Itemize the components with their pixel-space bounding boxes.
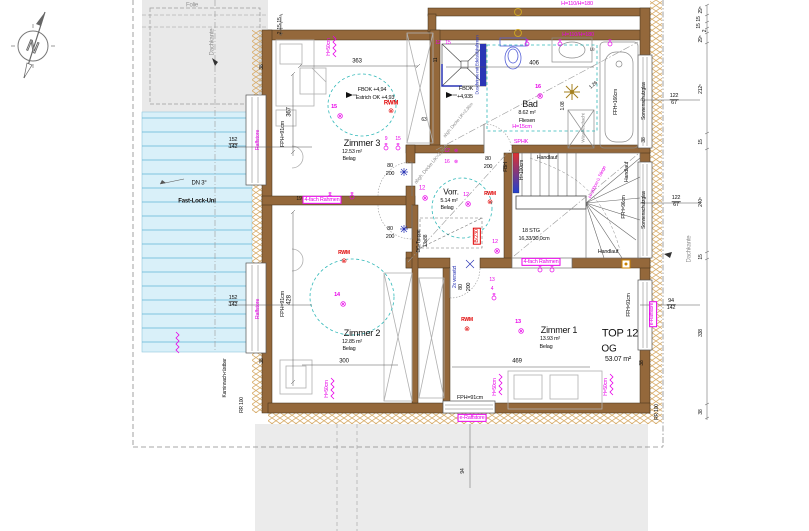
chain-38: 38 bbox=[699, 409, 705, 414]
z3-smoke-label: RWM bbox=[384, 101, 398, 108]
tag-15: 15 bbox=[395, 137, 400, 143]
bad-door-height: 200 bbox=[484, 164, 493, 170]
vorr-smoke-icon: ⊗ bbox=[487, 199, 493, 207]
laundry-chute-label: Wäscheschacht bbox=[580, 113, 585, 142]
dim-top-15b: 15 bbox=[278, 24, 284, 29]
z2-door-width: 80 bbox=[387, 226, 393, 232]
roof-edge-label-right: Dachkante bbox=[687, 236, 694, 263]
stair-count-label: 18 STG bbox=[522, 228, 540, 234]
vorr-smoke-label: RWM bbox=[484, 192, 496, 198]
z1-room-area: 13.93 m² bbox=[540, 336, 560, 342]
chain-240: 240⁵ bbox=[699, 197, 705, 207]
z1-room-finish: Belag bbox=[539, 344, 552, 350]
vorr-light-icon-3: ⊗ bbox=[494, 246, 501, 255]
insulation-hatch bbox=[252, 0, 662, 424]
bad-light-icon: ⊗ bbox=[537, 91, 544, 100]
vorr-room-finish: Belag bbox=[440, 205, 453, 211]
chimney-note: Kaminnach-rüstbar bbox=[223, 359, 229, 398]
unit-number: TOP 12 bbox=[602, 328, 638, 341]
vorr-tag-16: 16 bbox=[444, 160, 449, 166]
e-raffstore-right: e-Raffstore bbox=[649, 301, 657, 327]
z1-door-width: 80 bbox=[458, 284, 464, 290]
glazing-note-2: Sonnenschutzglas bbox=[642, 191, 648, 229]
attic-stair-label-2: 13x88 bbox=[424, 235, 430, 248]
vent-label: Lü bbox=[590, 46, 595, 51]
raffstore-label-2: Raffstore bbox=[255, 299, 261, 319]
radiator-height-z2: H=50cm bbox=[325, 380, 331, 398]
glazing-note-1: Sonnenschutzglas bbox=[642, 82, 648, 120]
dim-38-bl: 38 bbox=[260, 358, 266, 363]
z1-door-height: 200 bbox=[466, 283, 472, 292]
roof-foil-label: Folie bbox=[186, 3, 198, 10]
z1-smoke-label: RWM bbox=[461, 318, 473, 324]
z1-tag-4: 4 bbox=[491, 287, 494, 293]
roof-edge-arrows bbox=[212, 58, 672, 258]
roof-edge-label-left: Dachkante bbox=[210, 29, 217, 56]
chain-15a: 15 bbox=[697, 16, 703, 21]
parapet-height-bottom: FPH=91cm bbox=[457, 395, 483, 401]
dim-38-r2: 38 bbox=[640, 360, 646, 365]
vorr-light-no-1: 12 bbox=[419, 186, 425, 193]
fbh-height-label: H=100cm bbox=[520, 160, 526, 180]
shower-channel-note: Duschrinne mit Edelstahlrahmen bbox=[474, 35, 479, 94]
dim-38-tl: 38 bbox=[260, 64, 266, 69]
bad-room-name: Bad bbox=[522, 99, 537, 109]
z2-room-area: 12.85 m² bbox=[342, 339, 362, 345]
radiator-height-z1a: H=50cm bbox=[493, 378, 499, 396]
z2-smoke-label: RWM bbox=[338, 251, 350, 257]
z2-door-height: 200 bbox=[386, 234, 395, 240]
vorr-light-icon-1: ⊗ bbox=[422, 193, 429, 202]
dim-406: 406 bbox=[529, 61, 538, 68]
terrace-surface-label: Fast-Lock-Uni bbox=[178, 199, 215, 206]
tub-height-label: FFH=166cm bbox=[614, 89, 620, 115]
dim-38-r1: 38 bbox=[642, 137, 648, 142]
dim-63: 63 bbox=[421, 118, 426, 124]
chain-15d: 15 bbox=[699, 254, 705, 259]
vorr-room-name: Vorr. bbox=[443, 187, 458, 196]
radiator-height-z3: H=50cm bbox=[327, 38, 333, 56]
downpipe-label-left: RR 100 bbox=[240, 397, 246, 413]
window-dim-right-1: 12267 bbox=[670, 93, 679, 107]
frame-note-left: 4-fach Rahmen bbox=[302, 196, 341, 204]
roof-slope-label: DN 3° bbox=[191, 181, 206, 188]
stair-step-label: 16,33/30,0cm bbox=[519, 236, 550, 242]
bad-fbok-value: +4,935 bbox=[457, 94, 473, 100]
z3-door-width: 80 bbox=[387, 163, 393, 169]
fbh-label: FBH bbox=[504, 162, 510, 171]
dim-11: 11 bbox=[434, 58, 440, 63]
unit-floor: OG bbox=[601, 343, 616, 355]
bad-light-no: 16 bbox=[535, 84, 541, 90]
z2-room-finish: Belag bbox=[342, 346, 355, 352]
dim-300: 300 bbox=[339, 359, 348, 366]
handrail-label-3: Handlauf bbox=[598, 249, 618, 255]
handrail-label-2: Handlauf bbox=[624, 162, 630, 182]
dim-94-bottom: 94 bbox=[461, 468, 467, 473]
bad-sphk-note: SPHK bbox=[514, 139, 528, 145]
vorr-light-no-2: 12 bbox=[463, 192, 469, 198]
dimension-lines bbox=[228, 4, 709, 420]
bad-h15-note: H=15cm bbox=[512, 124, 531, 130]
bad-tag-15: 15 bbox=[445, 41, 450, 47]
downpipe-label-right: RR 100 bbox=[655, 404, 661, 420]
dim-top-2: 2 bbox=[278, 32, 284, 35]
unit-area: 53.07 m² bbox=[605, 356, 631, 364]
z1-room-name: Zimmer 1 bbox=[541, 325, 577, 335]
raffstore-label-1: Raffstore bbox=[255, 130, 261, 150]
e-raffstore-bottom: e-Raffstore bbox=[458, 414, 487, 422]
floor-plan-canvas: N Folie Dachkante Dachkante DN 3° Fast-L… bbox=[0, 0, 809, 531]
chain-212: 212⁵ bbox=[699, 84, 705, 94]
vorr-light-no-3: 12 bbox=[492, 239, 498, 245]
parapet-height-1: FPH=91cm bbox=[280, 121, 286, 147]
dim-108: 1.08 bbox=[561, 102, 567, 111]
z3-light-icon: ⊗ bbox=[337, 111, 344, 120]
handrail-label-1: Handlauf bbox=[537, 155, 557, 161]
z3-light-no: 15 bbox=[331, 104, 337, 110]
dim-top-15a: 15 bbox=[278, 17, 284, 22]
window-dim-left-2: 152142 bbox=[229, 295, 238, 309]
z3-room-finish: Belag bbox=[342, 156, 355, 162]
chain-29b: 29⁵ bbox=[699, 35, 705, 42]
z1-tag-13: 13 bbox=[489, 278, 494, 284]
ceiling-fan-icon bbox=[564, 84, 580, 100]
floor-heating-manifold bbox=[513, 153, 519, 193]
z3-smoke-icon: ⊗ bbox=[388, 108, 394, 116]
wc-fixture bbox=[500, 38, 526, 69]
chain-15b: 15 bbox=[697, 23, 703, 28]
vorr-tag-16-icon: ⊗ bbox=[454, 160, 458, 166]
window-height-note-2: H=110/H=180 bbox=[562, 32, 594, 38]
vorr-tag-12-icon: ⊗ bbox=[454, 149, 458, 155]
chain-29a: 29⁵ bbox=[699, 6, 705, 13]
bad-tag-12: 12 bbox=[435, 41, 440, 47]
parapet-height-2: FPH=91cm bbox=[280, 291, 286, 317]
z1-light-no: 13 bbox=[515, 319, 521, 325]
window-dim-right-3: 94142 bbox=[667, 298, 676, 312]
dim-428: 428 bbox=[287, 295, 294, 304]
attic-stair-label-1: DG-Treppe bbox=[417, 229, 423, 252]
stair-window-height: FFH=96cm bbox=[622, 195, 628, 218]
radiator-height-z1b: H=50cm bbox=[604, 378, 610, 396]
z3-room-name: Zimmer 3 bbox=[344, 138, 380, 148]
dim-19: 19 bbox=[296, 197, 301, 203]
junction-box-icon bbox=[622, 260, 630, 268]
z2-light-no: 14 bbox=[334, 292, 340, 298]
z3-room-area: 12.53 m² bbox=[342, 149, 362, 155]
chain-2: 2 bbox=[703, 30, 709, 33]
z3-fbok-level: FBOK +4,94 bbox=[358, 87, 386, 93]
vorr-room-area: 5.14 m² bbox=[440, 198, 457, 204]
vorr-light-icon-2: ⊗ bbox=[465, 199, 472, 208]
dim-469: 469 bbox=[512, 359, 521, 366]
window-height-z1: FFH=91cm bbox=[627, 293, 633, 316]
z2-light-icon: ⊗ bbox=[340, 299, 347, 308]
frame-note-stair: 4-fach Rahmen bbox=[521, 258, 560, 266]
z1-smoke-icon: ⊗ bbox=[464, 326, 470, 334]
hatch-dim-label: B/230 bbox=[473, 227, 481, 244]
z2-room-name: Zimmer 2 bbox=[344, 328, 380, 338]
chain-338: 338 bbox=[699, 329, 705, 337]
dim-367: 367 bbox=[287, 107, 294, 116]
bad-door-width: 80 bbox=[485, 156, 491, 162]
z3-door-height: 200 bbox=[386, 171, 395, 177]
chain-15c: 15 bbox=[699, 139, 705, 144]
dim-363: 363 bbox=[352, 59, 361, 66]
tag-9: 9 bbox=[385, 137, 388, 143]
compass-rose: N bbox=[11, 12, 55, 78]
bath-fixtures bbox=[552, 38, 638, 148]
bad-fbok-label: FBOK bbox=[459, 86, 473, 92]
compass-north-letter: N bbox=[24, 37, 41, 57]
walls bbox=[262, 8, 650, 413]
window-dim-left-1: 152142 bbox=[229, 137, 238, 151]
z2-smoke-icon: ⊗ bbox=[341, 258, 347, 266]
window-height-note-1: H=110/H=180 bbox=[561, 1, 593, 7]
floor-plan-graphics: N bbox=[0, 0, 809, 531]
bad-room-area: 8.62 m² bbox=[518, 110, 535, 116]
window-dim-right-2: 12267 bbox=[672, 195, 681, 209]
z1-light-icon: ⊗ bbox=[518, 326, 525, 335]
